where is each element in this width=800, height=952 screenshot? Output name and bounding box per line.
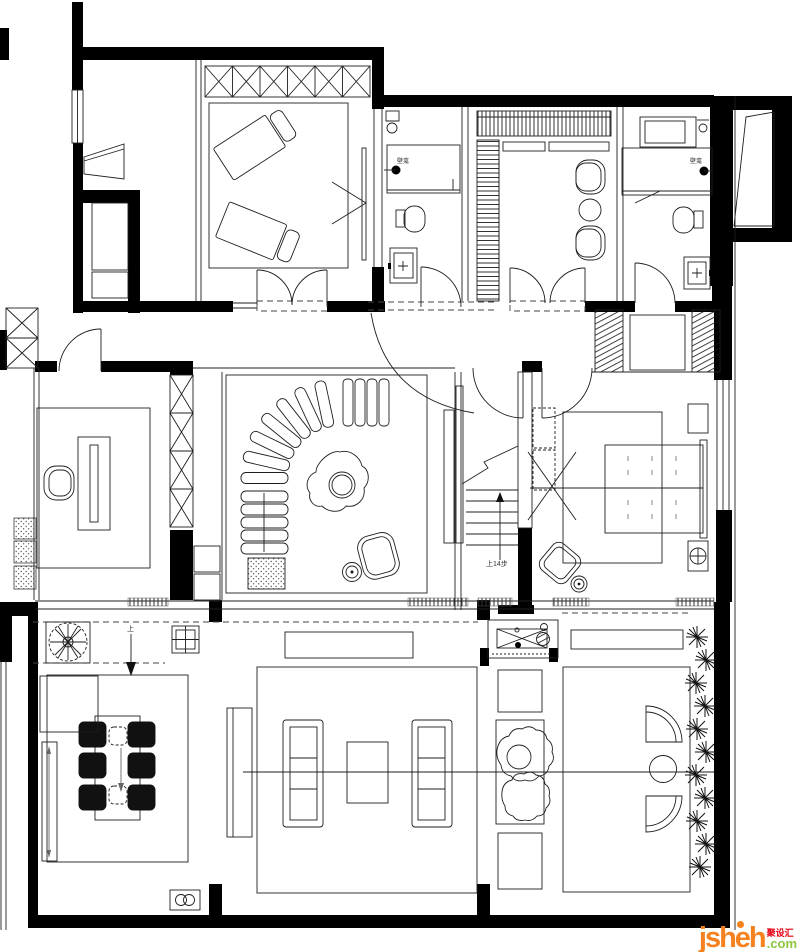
watermark-suffix: .com: [767, 938, 797, 949]
washbasin: [388, 248, 417, 283]
console: [285, 632, 413, 658]
cloakroom: [477, 111, 611, 303]
up-arrow: [496, 492, 504, 502]
stool: [343, 563, 362, 582]
niche-label-right: 壁龛: [690, 157, 702, 165]
wardrobe-x-strip: [205, 66, 370, 97]
sideboard: [42, 742, 57, 861]
coffee-table: [347, 742, 388, 803]
fan-chair-2: [646, 796, 682, 832]
organic-table: [307, 451, 368, 511]
entry-arrow: [126, 634, 136, 676]
door-bathroom-right: [635, 263, 675, 303]
wardrobe-hatch-1: [595, 310, 623, 372]
stone-blocks: [14, 518, 36, 589]
wardrobe-hatch-2: [692, 310, 720, 372]
stairs-label: 上14步: [486, 559, 508, 568]
double-bed: [605, 440, 707, 538]
hall-door-swing: [371, 313, 474, 413]
lounge-chair: [355, 530, 402, 582]
entry-up-label: 上: [127, 624, 134, 633]
planter-tree: [46, 622, 90, 663]
door-bathroom-left: [421, 267, 461, 307]
watermark-brand: jsheh: [699, 928, 765, 949]
bathroom-right: [622, 117, 713, 303]
dressing-chair-2: [576, 226, 605, 260]
round-table: [650, 756, 677, 783]
bench: [571, 630, 683, 649]
wardrobe-column: [170, 375, 193, 527]
closet-island: [630, 315, 685, 370]
nightstand-top: [688, 404, 708, 433]
shelf-stack-left: [477, 140, 499, 301]
door-bedroom-right: [542, 368, 592, 418]
single-bed-a: [213, 106, 299, 180]
fan-chair-1: [646, 706, 682, 742]
stair-treads: [466, 490, 518, 545]
watermark: jsheh 聚设汇 .com: [699, 928, 797, 949]
walkin-closet: [592, 310, 720, 372]
toilet: [396, 206, 425, 232]
planter-box-1: [498, 670, 542, 712]
grill-counter: [488, 620, 558, 658]
end-chairs-dashed: [109, 727, 127, 804]
terrace: [488, 620, 717, 892]
dressing-chair-1: [576, 160, 605, 194]
tatami-room: [194, 375, 427, 600]
living-room: [227, 632, 714, 893]
desk: [78, 437, 110, 530]
skylight-grid: [172, 626, 199, 653]
single-bed-b: [215, 202, 302, 266]
bathroom-left: [384, 111, 461, 307]
cross-mark: [528, 452, 576, 520]
planter-box-2: [498, 833, 542, 889]
bedroom-right: [536, 404, 708, 592]
bedroom-top-left: [205, 66, 370, 305]
tv-cabinet: [227, 708, 252, 837]
washbasin: [684, 257, 712, 289]
outlet-symbol: [170, 890, 200, 910]
door-study: [59, 329, 101, 371]
study-room: [14, 375, 193, 589]
side-table: [579, 199, 601, 221]
closet-dashed: [533, 408, 555, 490]
curved-shelf: [241, 379, 389, 554]
double-door-cloakroom: [510, 268, 585, 303]
section-arrow: [332, 148, 366, 260]
hanging-rail-top: [477, 111, 611, 136]
door-stairhall: [473, 368, 523, 418]
floor-plan-page: 壁龛 壁龛 上14步 上 jsheh 聚设汇 .com: [0, 0, 800, 952]
sofa-right: [412, 720, 452, 827]
dining-chairs: [79, 722, 155, 810]
mirror-panel: [84, 144, 124, 179]
floor-plan-canvas: 壁龛 壁龛 上14步 上: [0, 0, 800, 952]
nightstand-lamp: [688, 541, 708, 571]
desk-chair: [44, 466, 74, 500]
corridor: [6, 308, 474, 413]
stone-plinth: [248, 558, 285, 589]
entry-closet: [84, 144, 128, 298]
niche-label-left: 壁龛: [397, 157, 409, 165]
exterior-walls: [0, 2, 792, 928]
shaft-x-box: [6, 308, 38, 368]
stool: [571, 576, 587, 592]
double-door-bedroom: [257, 270, 327, 305]
toilet: [673, 207, 703, 233]
stair-break-line: [462, 446, 518, 484]
dining-room: [40, 622, 200, 910]
sofa-left: [283, 720, 323, 827]
shower-tray: [622, 148, 712, 195]
